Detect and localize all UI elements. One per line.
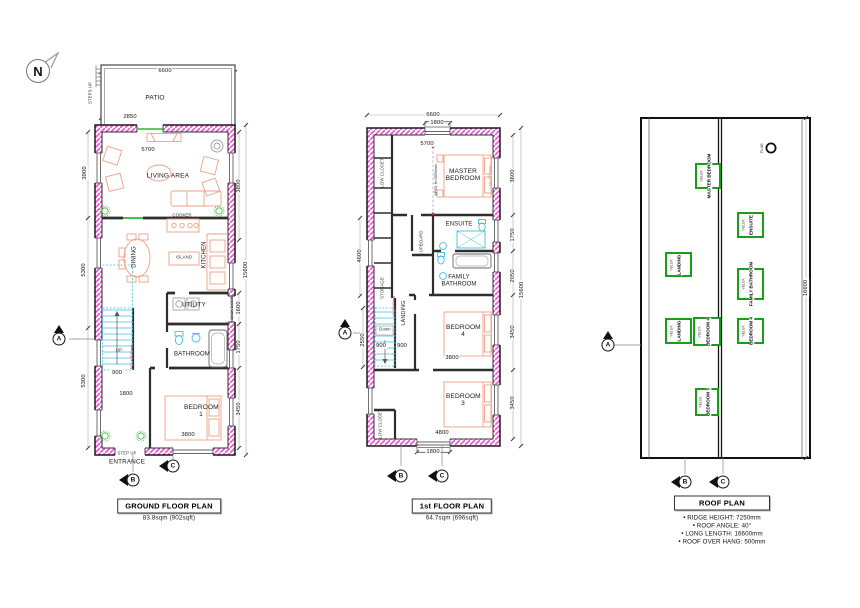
roof-window-bedroom3: BEDROOM 3VELUX: [695, 388, 719, 416]
section-marker-c-roof: C: [715, 474, 731, 490]
roof-window-family-bath: FAMILY BATHROOMVELUX: [737, 268, 764, 300]
section-marker-b-first: B: [393, 468, 409, 484]
dim-first-top-width: 6600: [425, 112, 440, 118]
dim-stair-a: 900: [375, 343, 387, 349]
dim-bed4-depth: 3450: [510, 324, 516, 339]
roof-window-landing-2: LANDINGVELUX: [665, 318, 692, 344]
roof-note-length: • LONG LENGTH: 16600mm: [681, 532, 762, 539]
room-label-landing: LANDING: [401, 300, 407, 325]
label-storage: STORAGE: [381, 277, 386, 299]
room-label-master: MASTER BEDROOM: [444, 168, 482, 183]
note-back-door: BACK DOOR: [230, 296, 234, 319]
roof-window-master: MASTER BEDROOMVELUX: [695, 163, 721, 189]
dim-living-width: 5700: [140, 147, 155, 153]
ground-floor-area: 83.8sqm (902sqft): [143, 516, 195, 523]
note-h-right: H=1200mm: [488, 166, 492, 186]
note-apex: APEX H=3500mm: [434, 164, 438, 195]
section-marker-c-first: C: [434, 468, 450, 484]
section-marker-c-ground: C: [165, 458, 181, 474]
label-low-closet-top: LOW CLOSET: [381, 158, 386, 187]
roof-outline: [641, 118, 810, 458]
roof-plan: MASTER BEDROOMVELUX ENSUITEVELUX LANDING…: [600, 110, 830, 555]
roof-note-ridge: • RIDGE HEIGHT: 7250mm: [683, 516, 761, 523]
label-island: ISLAND: [176, 256, 192, 261]
room-label-dining: DINING: [132, 246, 139, 268]
dim-bed4-width: 3800: [444, 355, 459, 361]
dim-ground-top-width: 6600: [157, 68, 172, 74]
section-marker-a-first: A: [337, 325, 353, 341]
roof-plan-title: ROOF PLAN: [674, 496, 770, 511]
dim-living-depth: 3900: [82, 165, 88, 180]
section-marker-b-roof: B: [677, 474, 693, 490]
room-label-living: LIVING AREA: [147, 172, 189, 179]
room-label-bedroom1: BEDROOM 1: [184, 404, 218, 419]
dim-bottom-opening: 1800: [425, 449, 440, 455]
roof-window-bedroom4-right: BEDROOM 4VELUX: [737, 318, 764, 344]
room-label-kitchen: KITCHEN: [202, 241, 209, 268]
dim-hall-width: 1800: [118, 391, 133, 397]
roof-window-landing-1: LANDINGVELUX: [665, 252, 692, 277]
dim-left-upper: 4600: [357, 248, 363, 263]
dim-right-upper: 3800: [236, 178, 242, 193]
dim-ensuite-depth: 1750: [510, 227, 516, 242]
dim-left-stairs: 2550: [360, 332, 366, 347]
section-marker-a-roof: A: [600, 337, 616, 353]
dim-stair-width: 900: [111, 370, 123, 376]
dim-bed3-width: 4800: [434, 430, 449, 436]
note-up: UP: [116, 349, 122, 354]
label-cooker: COOKER: [172, 214, 191, 219]
dim-bed-width: 3800: [180, 432, 195, 438]
room-label-ensuite: ENSUITE: [446, 222, 473, 229]
first-floor-area: 64.7sqm (696sqft): [426, 516, 478, 523]
first-floor-title: 1st FLOOR PLAN: [412, 499, 492, 514]
note-steps-up: STEPS UP: [89, 82, 94, 104]
roof-window-ensuite: ENSUITEVELUX: [737, 212, 764, 238]
room-label-bathroom: BATHROOM: [174, 352, 210, 359]
room-label-bedroom4: BEDROOM 4: [446, 324, 480, 339]
note-fcl: FCL+2450mm: [130, 345, 134, 369]
room-label-bedroom3: BEDROOM 3: [446, 393, 480, 408]
dim-total-depth-first: 15600: [519, 281, 525, 300]
room-label-patio: PATIO: [145, 94, 164, 101]
apex-tick: [432, 213, 434, 215]
note-h-stairs: H=2000mm: [392, 296, 396, 316]
roof-note-overhang: • ROOF OVER HANG: 500mm: [679, 540, 766, 547]
ground-floor-title: GROUND FLOOR PLAN: [117, 499, 221, 514]
north-label: N: [26, 59, 50, 83]
dim-inner-width: 5700: [419, 141, 434, 147]
flue-icon: [766, 143, 775, 152]
label-low-closet-bottom: LOW CLOSET: [379, 409, 384, 438]
dim-top-opening: 1800: [429, 120, 444, 126]
dim-bath-depth: 2050: [510, 268, 516, 283]
first-floor-plan: 6600 1800 5700 LOW CLOSET APEX H=3500mm …: [345, 100, 530, 530]
section-marker-a-ground: A: [51, 331, 67, 347]
dim-bed-depth: 3450: [236, 401, 242, 416]
roof-window-bedroom4-left: BEDROOM 4VELUX: [693, 317, 721, 346]
dim-patio-width: 2850: [122, 114, 137, 120]
north-arrow: N: [24, 52, 60, 88]
drawing-canvas: N: [0, 0, 860, 608]
ground-floor-plan: 6600 2850 PATIO STEPS UP 5700 3900 LIVIN…: [55, 58, 260, 533]
note-step-up: STEP UP: [117, 452, 136, 457]
label-flue: FLUE: [760, 143, 764, 153]
dim-bed3-depth: 3450: [510, 395, 516, 410]
dim-master-depth: 3600: [510, 168, 516, 183]
note-down: Down: [379, 328, 390, 333]
section-marker-b-ground: B: [125, 472, 141, 488]
roof-note-angle: • ROOF ANGLE: 40°: [693, 524, 752, 531]
dim-utility-depth: 1600: [236, 300, 242, 315]
room-label-family-bath: FAMILY BATHROOM: [439, 274, 479, 287]
dim-total-depth: 15600: [243, 261, 249, 280]
dim-lower-depth: 5300: [81, 373, 87, 388]
dim-bath-depth: 1750: [236, 339, 242, 354]
room-label-utility: UTILITY: [182, 303, 206, 310]
dim-roof-length: 16600: [803, 279, 809, 298]
label-cupboard: CUPBOARD: [420, 230, 425, 255]
dim-mid-depth: 5300: [81, 262, 87, 277]
dim-stair-b: 900: [396, 343, 408, 349]
note-entrance: ENTRANCE: [109, 458, 145, 465]
